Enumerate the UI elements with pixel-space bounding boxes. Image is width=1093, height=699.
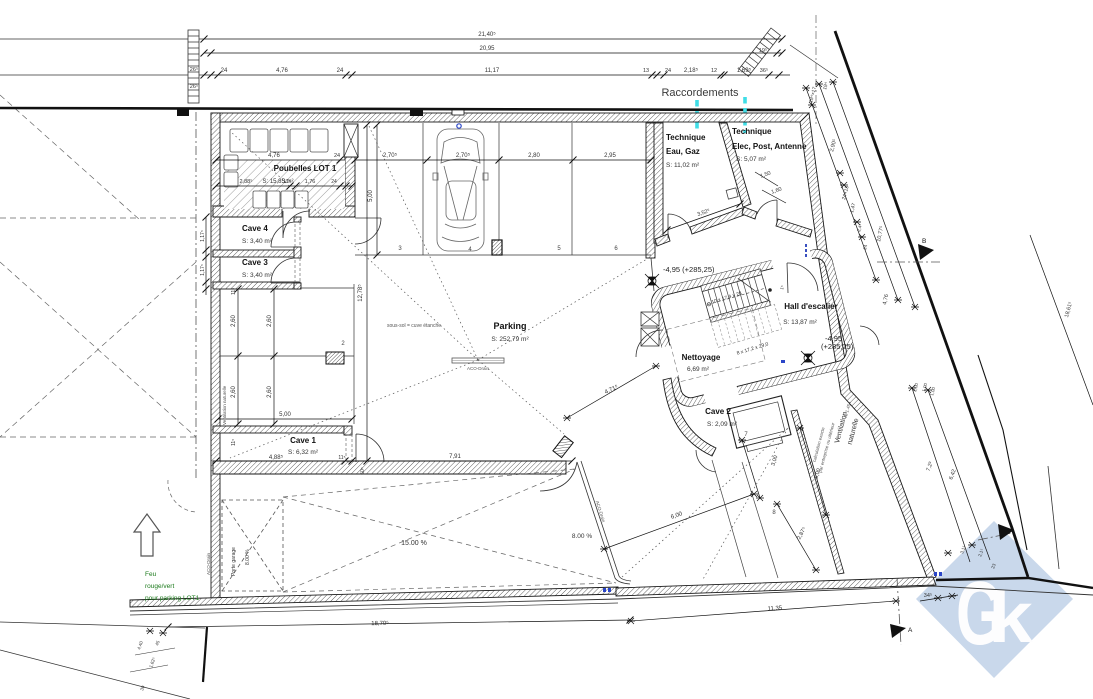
svg-text:2,88⁵: 2,88⁵	[240, 178, 253, 185]
svg-text:50⁵: 50⁵	[360, 467, 366, 475]
svg-text:ACO-Drain: ACO-Drain	[206, 552, 211, 575]
svg-text:pour parking LOT1: pour parking LOT1	[145, 595, 200, 602]
svg-text:12,78⁵: 12,78⁵	[357, 284, 364, 302]
svg-text:2,18⁵: 2,18⁵	[684, 67, 699, 74]
svg-text:34⁵: 34⁵	[924, 592, 932, 599]
svg-text:1,17⁵: 1,17⁵	[200, 230, 206, 242]
svg-text:24: 24	[331, 179, 337, 185]
svg-text:20,95: 20,95	[479, 46, 495, 52]
svg-text:Raccordements: Raccordements	[661, 87, 739, 99]
svg-text:Parking: Parking	[493, 321, 526, 331]
svg-text:Cave 1: Cave 1	[290, 436, 316, 445]
svg-text:S: 3,40 m²: S: 3,40 m²	[242, 238, 273, 245]
svg-text:4,76: 4,76	[268, 153, 280, 159]
svg-text:4,76: 4,76	[276, 68, 288, 74]
svg-text:11,35: 11,35	[767, 605, 783, 612]
svg-text:24: 24	[221, 68, 228, 74]
svg-text:Cave 3: Cave 3	[242, 258, 268, 267]
svg-text:A: A	[908, 627, 913, 634]
svg-text:11,17: 11,17	[485, 68, 500, 74]
svg-text:2,60: 2,60	[267, 386, 273, 398]
svg-text:21,40⁵: 21,40⁵	[478, 31, 496, 38]
svg-text:(+285,25): (+285,25)	[821, 342, 854, 351]
svg-text:2,60: 2,60	[267, 315, 273, 327]
svg-text:1,69⁵: 1,69⁵	[737, 67, 752, 74]
svg-text:2,95: 2,95	[604, 153, 616, 159]
svg-text:sous-sol = cuve étanche: sous-sol = cuve étanche	[387, 323, 441, 329]
svg-text:2,70⁵: 2,70⁵	[383, 152, 398, 159]
svg-text:1,76: 1,76	[305, 179, 316, 185]
svg-text:S: 6,32 m²: S: 6,32 m²	[288, 449, 319, 456]
svg-text:13: 13	[643, 68, 649, 74]
svg-text:Feu: Feu	[145, 571, 157, 578]
svg-text:26⁵: 26⁵	[190, 66, 198, 73]
svg-text:19⁵: 19⁵	[759, 47, 767, 54]
svg-text:Cave 2: Cave 2	[705, 407, 731, 416]
svg-text:7,91: 7,91	[449, 454, 461, 460]
svg-text:4,88⁵: 4,88⁵	[269, 454, 284, 461]
svg-text:Porte garage: Porte garage	[231, 547, 237, 576]
svg-text:S: 13,87 m²: S: 13,87 m²	[783, 319, 817, 326]
svg-text:S: 3,40 m²: S: 3,40 m²	[242, 272, 273, 279]
svg-text:12: 12	[711, 68, 717, 74]
svg-text:ACO-Drain: ACO-Drain	[467, 366, 490, 371]
svg-text:Technique: Technique	[732, 127, 772, 136]
svg-text:11⁵: 11⁵	[338, 455, 345, 461]
svg-text:8.00 %: 8.00 %	[245, 549, 251, 565]
svg-text:Elec, Post, Antenne: Elec, Post, Antenne	[732, 142, 807, 151]
svg-text:26⁵: 26⁵	[190, 83, 198, 90]
svg-text:24: 24	[665, 68, 671, 74]
svg-text:S: 5,07 m²: S: 5,07 m²	[736, 156, 767, 163]
svg-text:6,69 m²: 6,69 m²	[687, 366, 710, 373]
svg-text:11⁵: 11⁵	[231, 439, 237, 446]
svg-text:Cave 4: Cave 4	[242, 224, 268, 233]
svg-text:5,00: 5,00	[279, 412, 291, 418]
svg-text:24: 24	[337, 68, 344, 74]
svg-text:Poubelles LOT 1: Poubelles LOT 1	[274, 164, 337, 173]
svg-text:5,00: 5,00	[368, 190, 374, 202]
svg-text:Technique: Technique	[666, 133, 706, 142]
svg-text:S: 252,79 m²: S: 252,79 m²	[491, 336, 529, 343]
svg-text:Ventilation naturelle: Ventilation naturelle	[222, 385, 227, 425]
svg-text:S: 11,02 m²: S: 11,02 m²	[666, 162, 700, 169]
svg-text:18,70⁵: 18,70⁵	[371, 620, 389, 627]
svg-text:S: 2,09 m²: S: 2,09 m²	[707, 421, 738, 428]
svg-text:rouge/vert: rouge/vert	[145, 583, 174, 590]
svg-text:24: 24	[334, 153, 340, 159]
svg-text:1,17⁵: 1,17⁵	[200, 264, 206, 276]
svg-text:8.00 %: 8.00 %	[572, 533, 592, 540]
svg-text:Hall d'escalier: Hall d'escalier	[784, 302, 838, 311]
svg-text:2,60: 2,60	[231, 315, 237, 327]
svg-text:B: B	[922, 238, 926, 245]
svg-text:Eau, Gaz: Eau, Gaz	[666, 147, 700, 156]
svg-text:Nettoyage: Nettoyage	[682, 353, 721, 362]
svg-text:S: 15,85 m²: S: 15,85 m²	[262, 179, 293, 185]
svg-text:36⁵: 36⁵	[760, 67, 768, 74]
svg-text:15.00 %: 15.00 %	[401, 540, 427, 547]
svg-text:2,70⁵: 2,70⁵	[456, 152, 471, 159]
svg-text:-4,95 (+285,25): -4,95 (+285,25)	[663, 265, 715, 274]
svg-text:2,60: 2,60	[231, 386, 237, 398]
svg-text:2,80: 2,80	[528, 153, 540, 159]
svg-text:11⁵: 11⁵	[231, 288, 237, 295]
